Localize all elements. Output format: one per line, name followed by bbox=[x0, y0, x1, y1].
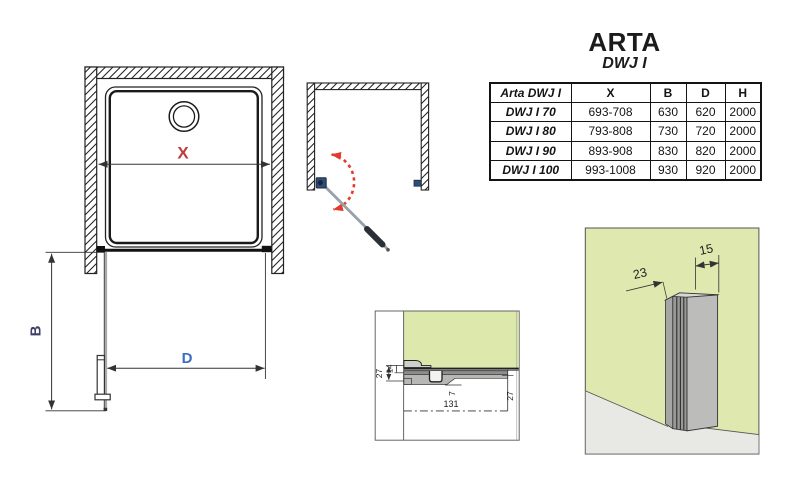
model-title: DWJ I bbox=[489, 55, 760, 73]
wall-profile-3d-detail: 23 15 bbox=[584, 227, 761, 456]
sill-inner-height-label: 14 bbox=[385, 364, 394, 373]
h-value-cell: 2000 bbox=[725, 141, 761, 160]
table-row: DWJ I 70 693-708 630 620 2000 bbox=[490, 103, 761, 122]
product-header-and-table: ARTA DWJ I Arta DWJ I X B D H DWJ I 70 6… bbox=[489, 30, 760, 181]
x-value-cell: 993-1008 bbox=[571, 160, 650, 180]
b-value-cell: 630 bbox=[650, 103, 686, 122]
door-swing-diagram bbox=[295, 60, 440, 265]
sill-length-label: 131 bbox=[443, 399, 458, 409]
size-table-header-row: Arta DWJ I X B D H bbox=[490, 83, 761, 103]
swing-arc bbox=[332, 155, 355, 210]
sill-cross-section-detail: 27 14 7 131 27 bbox=[374, 310, 521, 443]
door-handle bbox=[95, 356, 110, 400]
wall-catch-block bbox=[414, 180, 421, 186]
model-name-cell: DWJ I 90 bbox=[490, 141, 571, 160]
d-dimension: D bbox=[107, 253, 265, 379]
col-header-x: X bbox=[571, 83, 650, 103]
sill-total-height-label: 27 bbox=[374, 369, 384, 379]
brand-title: ARTA bbox=[489, 30, 760, 55]
x-value-cell: 893-908 bbox=[571, 141, 650, 160]
niche-walls-small bbox=[307, 83, 428, 190]
sill-lip-label: 7 bbox=[447, 391, 457, 396]
glass-panel bbox=[404, 312, 519, 368]
d-value-cell: 820 bbox=[686, 141, 725, 160]
model-name-cell: DWJ I 70 bbox=[490, 103, 571, 122]
x-dimension-label: X bbox=[177, 144, 189, 163]
d-value-cell: 920 bbox=[686, 160, 725, 180]
shower-tray bbox=[106, 87, 263, 247]
b-value-cell: 930 bbox=[650, 160, 686, 180]
table-row: DWJ I 80 793-808 730 720 2000 bbox=[490, 122, 761, 141]
d-value-cell: 620 bbox=[686, 103, 725, 122]
col-header-product: Arta DWJ I bbox=[490, 83, 571, 103]
col-header-h: H bbox=[725, 83, 761, 103]
profile-width-label: 15 bbox=[698, 241, 715, 258]
door-front-view bbox=[95, 252, 110, 411]
b-value-cell: 730 bbox=[650, 122, 686, 141]
table-row: DWJ I 100 993-1008 930 920 2000 bbox=[490, 160, 761, 180]
catalog-page: X B D bbox=[0, 0, 800, 481]
table-row: DWJ I 90 893-908 830 820 2000 bbox=[490, 141, 761, 160]
model-name-cell: DWJ I 100 bbox=[490, 160, 571, 180]
hinge-block bbox=[316, 178, 326, 188]
h-value-cell: 2000 bbox=[725, 103, 761, 122]
wall-profile-3d bbox=[666, 293, 719, 431]
size-table: Arta DWJ I X B D H DWJ I 70 693-708 630 … bbox=[489, 82, 762, 181]
plan-top-view: X B D bbox=[0, 0, 320, 440]
sill-right-height-label: 27 bbox=[505, 391, 515, 401]
h-value-cell: 2000 bbox=[725, 122, 761, 141]
h-value-cell: 2000 bbox=[725, 160, 761, 180]
b-value-cell: 830 bbox=[650, 141, 686, 160]
open-door bbox=[324, 186, 390, 252]
x-value-cell: 693-708 bbox=[571, 103, 650, 122]
drain-icon bbox=[169, 102, 199, 132]
b-dimension-label: B bbox=[28, 325, 45, 336]
d-dimension-label: D bbox=[182, 350, 193, 367]
col-header-d: D bbox=[686, 83, 725, 103]
d-value-cell: 720 bbox=[686, 122, 725, 141]
model-name-cell: DWJ I 80 bbox=[490, 122, 571, 141]
x-value-cell: 793-808 bbox=[571, 122, 650, 141]
b-dimension: B bbox=[28, 252, 107, 410]
col-header-b: B bbox=[650, 83, 686, 103]
